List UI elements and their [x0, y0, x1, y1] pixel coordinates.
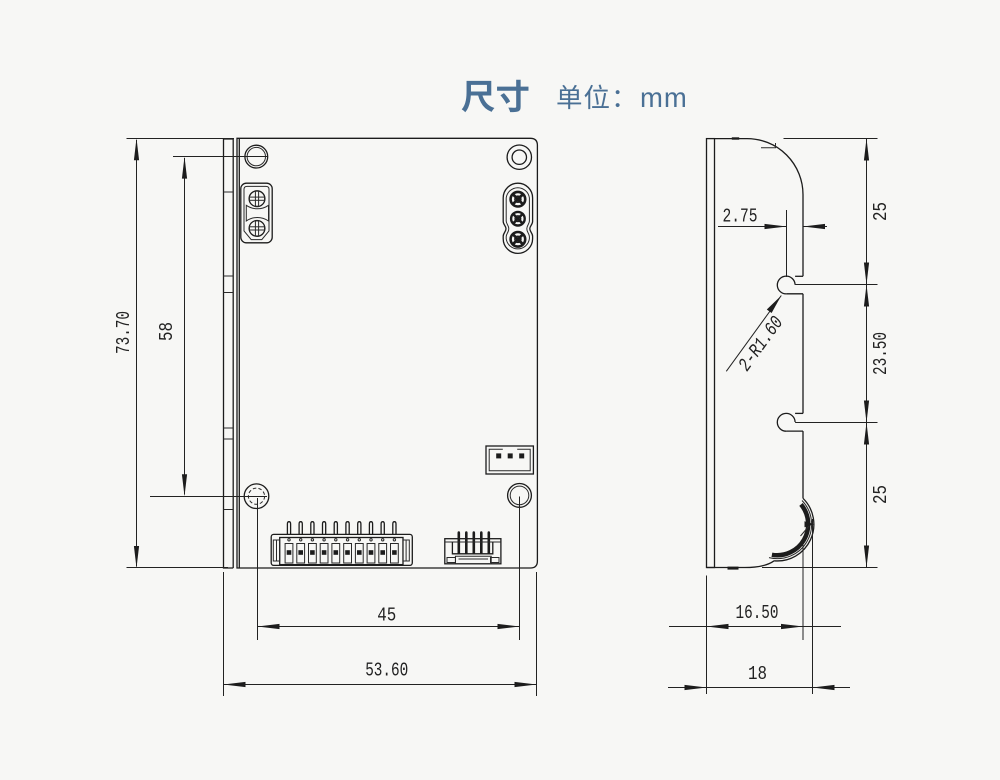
- svg-text:18: 18: [748, 663, 767, 685]
- svg-text:16.50: 16.50: [736, 602, 779, 624]
- svg-text:58: 58: [156, 322, 178, 341]
- svg-text:mm: mm: [640, 82, 688, 113]
- svg-text:2.75: 2.75: [723, 206, 758, 228]
- svg-text:53.60: 53.60: [365, 660, 408, 682]
- svg-text:45: 45: [377, 605, 396, 627]
- svg-text:25: 25: [870, 202, 892, 221]
- svg-text:25: 25: [870, 485, 892, 504]
- svg-text:73.70: 73.70: [113, 311, 135, 354]
- svg-text:23.50: 23.50: [870, 332, 892, 375]
